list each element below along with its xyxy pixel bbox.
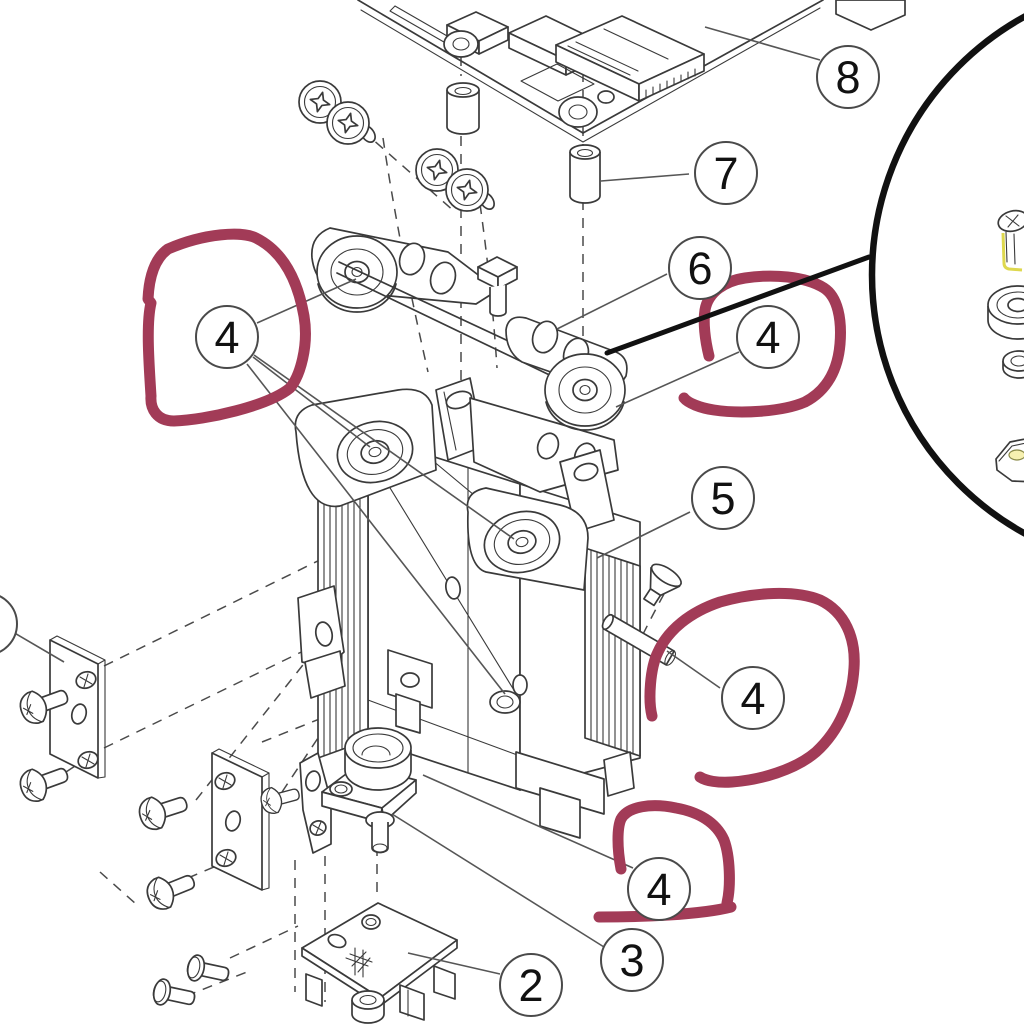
exploded-parts-diagram: 8 7 6 4 4 5 4 4 3 2 bbox=[0, 0, 1024, 1024]
detail-washer bbox=[1003, 351, 1024, 378]
flat-head-screw bbox=[635, 560, 685, 611]
callout-4b: 4 bbox=[736, 305, 800, 369]
callout-8: 8 bbox=[816, 45, 880, 109]
callout-5-label: 5 bbox=[710, 476, 735, 521]
detail-bearing bbox=[988, 286, 1024, 339]
callout-4d-label: 4 bbox=[646, 867, 671, 912]
magnifier-circle bbox=[872, 0, 1024, 570]
callout-6: 6 bbox=[668, 236, 732, 300]
standoff-spacer-1 bbox=[447, 83, 479, 134]
magnifier-detail bbox=[872, 0, 1024, 570]
pivot-pin bbox=[366, 812, 394, 853]
callout-4c-label: 4 bbox=[740, 676, 765, 721]
callout-2: 2 bbox=[499, 953, 563, 1017]
callout-4c: 4 bbox=[721, 666, 785, 730]
callout-5: 5 bbox=[691, 466, 755, 530]
callout-4b-label: 4 bbox=[755, 315, 780, 360]
callout-7-label: 7 bbox=[713, 151, 738, 196]
callout-6-label: 6 bbox=[687, 246, 712, 291]
callout-4a-label: 4 bbox=[214, 315, 239, 360]
callout-8-label: 8 bbox=[835, 55, 860, 100]
callout-3-label: 3 bbox=[619, 938, 644, 983]
diagram-line-art bbox=[0, 0, 1024, 1024]
mounting-plate-mid bbox=[212, 749, 269, 890]
callout-7: 7 bbox=[694, 141, 758, 205]
standoff-spacer-2 bbox=[570, 145, 600, 203]
sensor-board bbox=[302, 903, 457, 1023]
callout-3: 3 bbox=[600, 928, 664, 992]
callout-4a: 4 bbox=[195, 305, 259, 369]
bearing-cup bbox=[345, 728, 411, 790]
callout-4d: 4 bbox=[627, 857, 691, 921]
callout-2-label: 2 bbox=[518, 963, 543, 1008]
